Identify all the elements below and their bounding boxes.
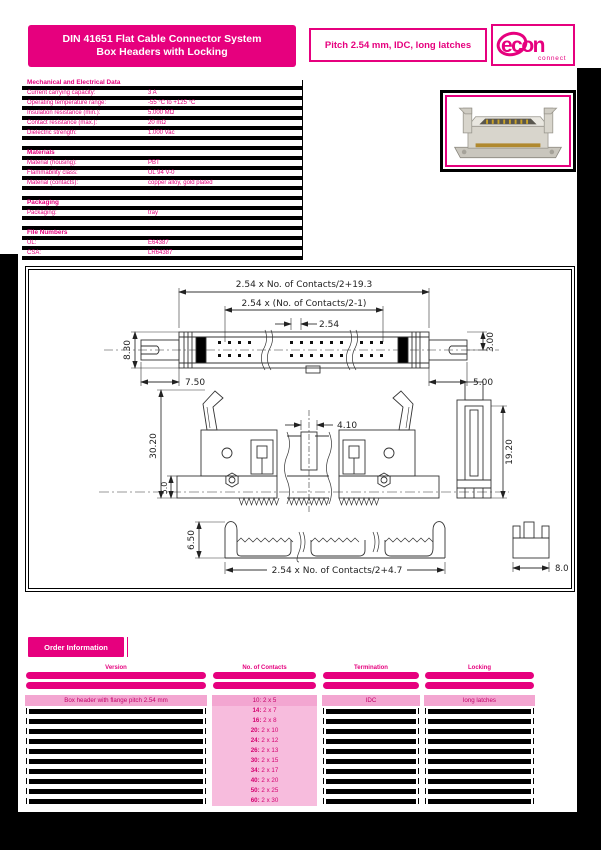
redacted-cell [322,746,420,756]
redacted-cell [322,756,420,766]
contacts-cell: 34: 2 x 17 [212,766,317,776]
spec-row: Material (housing):PBT [22,160,302,170]
redacted-cell [322,736,420,746]
spec-gap [22,140,302,150]
version-cell: Box header with flange pitch 2.54 mm [25,695,207,706]
redacted-cell [25,736,207,746]
spec-row: Packaging:tray [22,210,302,220]
product-photo [445,95,571,167]
redacted-cell [25,776,207,786]
locking-cell: long latches [424,695,535,706]
technical-drawing-icon: 2.54 x No. of Contacts/2+19.3 2.54 x (No… [29,270,571,588]
order-information-badge: Order Information [28,637,124,657]
dimensional-drawing: 2.54 x No. of Contacts/2+19.3 2.54 x (No… [28,269,572,589]
redacted-cell [25,756,207,766]
header-bar [425,672,534,679]
header-bar [323,672,419,679]
logo-subtext: connect [538,55,566,62]
redacted-cell [322,766,420,776]
redacted-cell [322,726,420,736]
contacts-cell: 50: 2 x 25 [212,786,317,796]
redacted-cell [424,736,535,746]
redacted-cell [25,706,207,716]
redacted-cell [322,706,420,716]
header-bar [26,682,206,689]
column-header-locking: Locking [424,664,535,691]
scan-edge-right [577,68,601,850]
column-header-termination: Termination [322,664,420,691]
order-table-header: Version No. of Contacts Termination Lock… [25,662,535,691]
contacts-cell: 60: 2 x 30 [212,796,317,806]
spec-row: Contact resistance (max.):20 mΩ [22,120,302,130]
redacted-cell [25,786,207,796]
dim-slot-width: 4.10 [337,421,357,431]
redacted-cell [424,726,535,736]
connector-photo-icon [447,97,569,165]
redacted-cell [424,716,535,726]
header-bar [425,682,534,689]
order-row: 34: 2 x 17 [25,766,535,776]
contacts-cell: 20: 2 x 10 [212,726,317,736]
redacted-cell [424,766,535,776]
spec-row: UL:E64387 [22,240,302,250]
order-row: 50: 2 x 25 [25,786,535,796]
redacted-cell [424,706,535,716]
contacts-cell: 40: 2 x 20 [212,776,317,786]
scan-edge-bottom [0,812,601,850]
contacts-cell: 26: 2 x 13 [212,746,317,756]
redacted-cell [424,756,535,766]
order-row: 26: 2 x 13 [25,746,535,756]
redacted-cell [424,786,535,796]
dim-overall-width: 2.54 x No. of Contacts/2+19.3 [236,280,372,290]
dim-strain-height: 6.50 [187,530,197,550]
product-photo-frame [440,90,576,172]
redacted-cell [322,776,420,786]
spec-table: Mechanical and Electrical Data Current c… [22,80,303,260]
pitch-info-box: Pitch 2.54 mm, IDC, long latches [309,28,487,62]
header-bar [213,672,316,679]
spec-gap [22,190,302,200]
contacts-cell: 16: 2 x 8 [212,716,317,726]
spec-row: Insulation resistance (min.):5.000 MΩ [22,110,302,120]
redacted-cell [25,796,207,806]
dimensional-drawing-frame: 2.54 x No. of Contacts/2+19.3 2.54 x (No… [25,266,575,592]
spec-row: Dielectric strength:1.000 Vac [22,130,302,140]
document-title: DIN 41651 Flat Cable Connector System Bo… [28,25,296,67]
pitch-info-text: Pitch 2.54 mm, IDC, long latches [325,40,471,51]
spec-section-title: File Numbers [22,230,302,240]
contacts-cell: 10: 2 x 5 [212,695,317,706]
order-row: 14: 2 x 7 [25,706,535,716]
termination-cell: IDC [322,695,420,706]
column-header-version: Version [25,664,207,691]
spec-row: Flammability class:UL 94 V-0 [22,170,302,180]
order-row-first: Box header with flange pitch 2.54 mm 10:… [25,695,535,706]
contacts-cell: 24: 2 x 12 [212,736,317,746]
econ-logo-icon: econ connect [495,26,571,64]
dim-contact-span: 2.54 x (No. of Contacts/2-1) [242,299,367,309]
header-bar [213,682,316,689]
logo-text: econ [501,34,545,57]
spec-row: Material (contacts):copper alloy, gold p… [22,180,302,190]
redacted-cell [322,786,420,796]
dim-left-offset: 7.50 [185,378,205,388]
column-header-contacts: No. of Contacts [212,664,317,691]
dim-strain-width: 2.54 x No. of Contacts/2+4.7 [272,566,403,576]
redacted-cell [25,766,207,776]
spec-row: CSA:LR64387 [22,250,302,260]
order-row: 60: 2 x 30 [25,796,535,806]
redacted-cell [424,746,535,756]
dim-body-height: 8.30 [123,340,133,360]
order-row: 30: 2 x 15 [25,756,535,766]
scan-edge-left [0,254,18,850]
order-row: 16: 2 x 8 [25,716,535,726]
dim-total-height: 30.20 [149,433,159,459]
contacts-cell: 30: 2 x 15 [212,756,317,766]
datasheet-page: DIN 41651 Flat Cable Connector System Bo… [0,0,601,850]
spec-row: Operating temperature range:-55 °C to +1… [22,100,302,110]
title-line-1: DIN 41651 Flat Cable Connector System [63,33,262,46]
redacted-cell [25,716,207,726]
redacted-cell [25,726,207,736]
redacted-cell [25,746,207,756]
title-line-2: Box Headers with Locking [96,46,227,59]
spec-row: Current carrying capacity:3 A [22,90,302,100]
dim-pitch: 2.54 [319,320,339,330]
dim-base-height: 5.0 [160,482,169,495]
header-bar [26,672,206,679]
contacts-cell: 14: 2 x 7 [212,706,317,716]
spec-section-title: Mechanical and Electrical Data [22,80,302,90]
dim-side-width: 8.0 [555,564,569,574]
dim-side-height: 19.20 [505,439,515,465]
header-bar [323,682,419,689]
spec-section-title: Materials [22,150,302,160]
order-row: 20: 2 x 10 [25,726,535,736]
spec-section-title: Packaging [22,200,302,210]
order-table: Version No. of Contacts Termination Lock… [25,662,535,806]
order-row: 40: 2 x 20 [25,776,535,786]
dim-right-height: 3.00 [486,332,496,352]
redacted-cell [424,776,535,786]
redacted-cell [424,796,535,806]
redacted-cell [322,796,420,806]
order-row: 24: 2 x 12 [25,736,535,746]
redacted-cell [322,716,420,726]
brand-logo: econ connect [491,24,575,66]
